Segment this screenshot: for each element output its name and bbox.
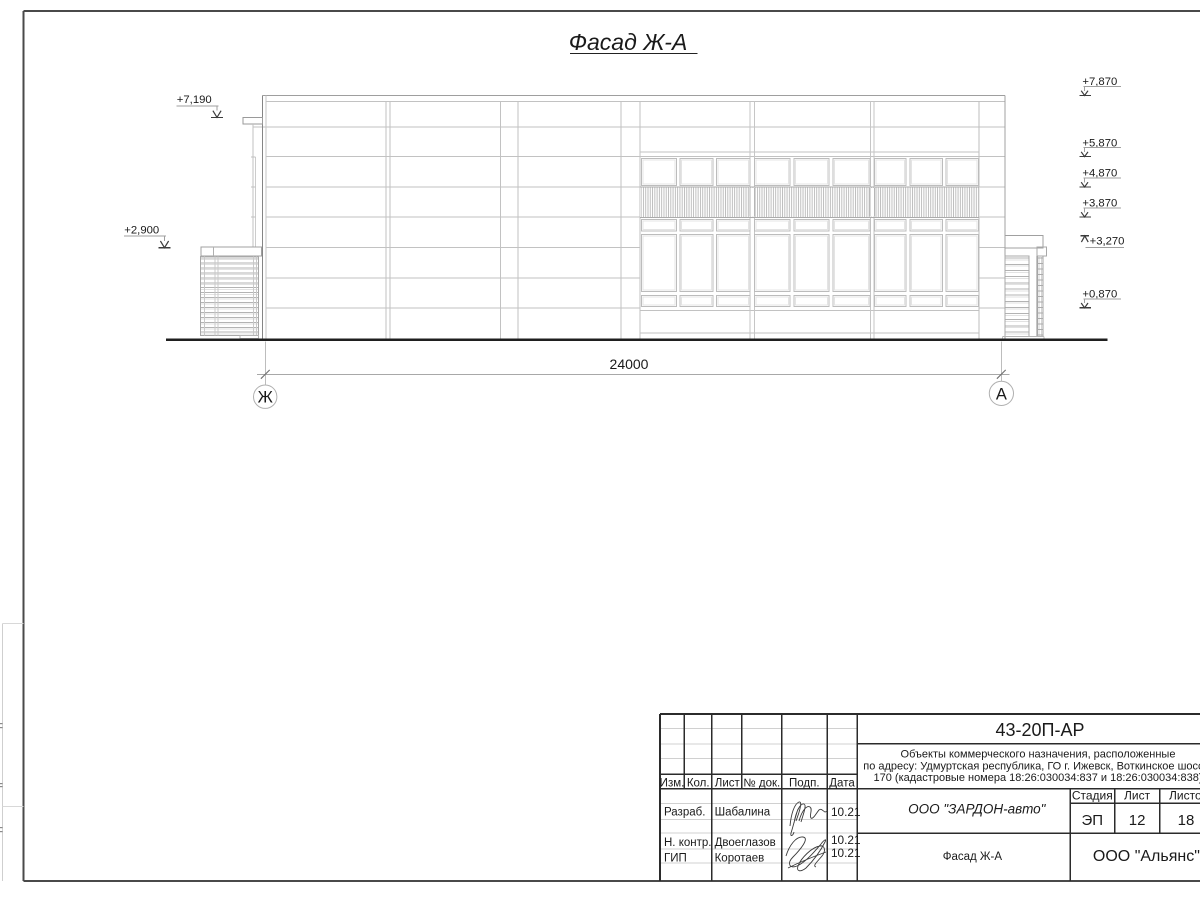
svg-text:Лист: Лист — [715, 777, 741, 789]
svg-text:ГИП: ГИП — [664, 852, 687, 864]
svg-text:ЭП: ЭП — [1082, 812, 1104, 829]
svg-text:10.21: 10.21 — [831, 846, 861, 860]
svg-text:Двоеглазов: Двоеглазов — [715, 837, 776, 849]
svg-text:Дата: Дата — [829, 777, 855, 789]
svg-text:ООО "ЗАРДОН-авто": ООО "ЗАРДОН-авто" — [908, 801, 1047, 816]
svg-text:А: А — [996, 385, 1007, 403]
svg-text:10.21: 10.21 — [831, 805, 861, 819]
svg-text:ООО "Альянс": ООО "Альянс" — [1093, 848, 1200, 865]
svg-text:+2,900: +2,900 — [124, 224, 159, 236]
svg-text:170 (кадастровые номера 18:26:: 170 (кадастровые номера 18:26:030034:837… — [874, 772, 1200, 784]
svg-text:Кол.: Кол. — [687, 777, 710, 789]
svg-text:Подп.: Подп. — [789, 777, 820, 789]
svg-text:Шабалина: Шабалина — [715, 807, 771, 819]
svg-text:Объекты коммерческого назначен: Объекты коммерческого назначения, распол… — [901, 749, 1176, 761]
svg-text:Лист: Лист — [1124, 789, 1151, 803]
svg-text:Стадия: Стадия — [1072, 789, 1113, 803]
svg-text:№ док.: № док. — [743, 777, 780, 789]
svg-text:Листов: Листов — [1169, 789, 1200, 803]
svg-text:12: 12 — [1129, 812, 1146, 829]
svg-text:по адресу: Удмуртская республи: по адресу: Удмуртская республика, ГО г. … — [863, 760, 1200, 772]
svg-text:Н. контр.: Н. контр. — [664, 837, 711, 849]
svg-text:10.21: 10.21 — [831, 833, 861, 847]
svg-text:43-20П-АР: 43-20П-АР — [996, 720, 1085, 740]
svg-text:+7,190: +7,190 — [177, 94, 212, 106]
svg-text:Разраб.: Разраб. — [664, 807, 705, 819]
svg-text:24000: 24000 — [610, 356, 649, 372]
svg-text:Коротаев: Коротаев — [715, 852, 765, 864]
svg-text:18: 18 — [1178, 812, 1195, 829]
svg-text:Фасад Ж-А: Фасад Ж-А — [569, 29, 688, 55]
svg-text:Фасад Ж-А: Фасад Ж-А — [943, 851, 1003, 863]
svg-text:Изм.: Изм. — [660, 777, 685, 789]
svg-text:Ж: Ж — [258, 389, 274, 407]
svg-text:+3,270: +3,270 — [1090, 236, 1125, 248]
